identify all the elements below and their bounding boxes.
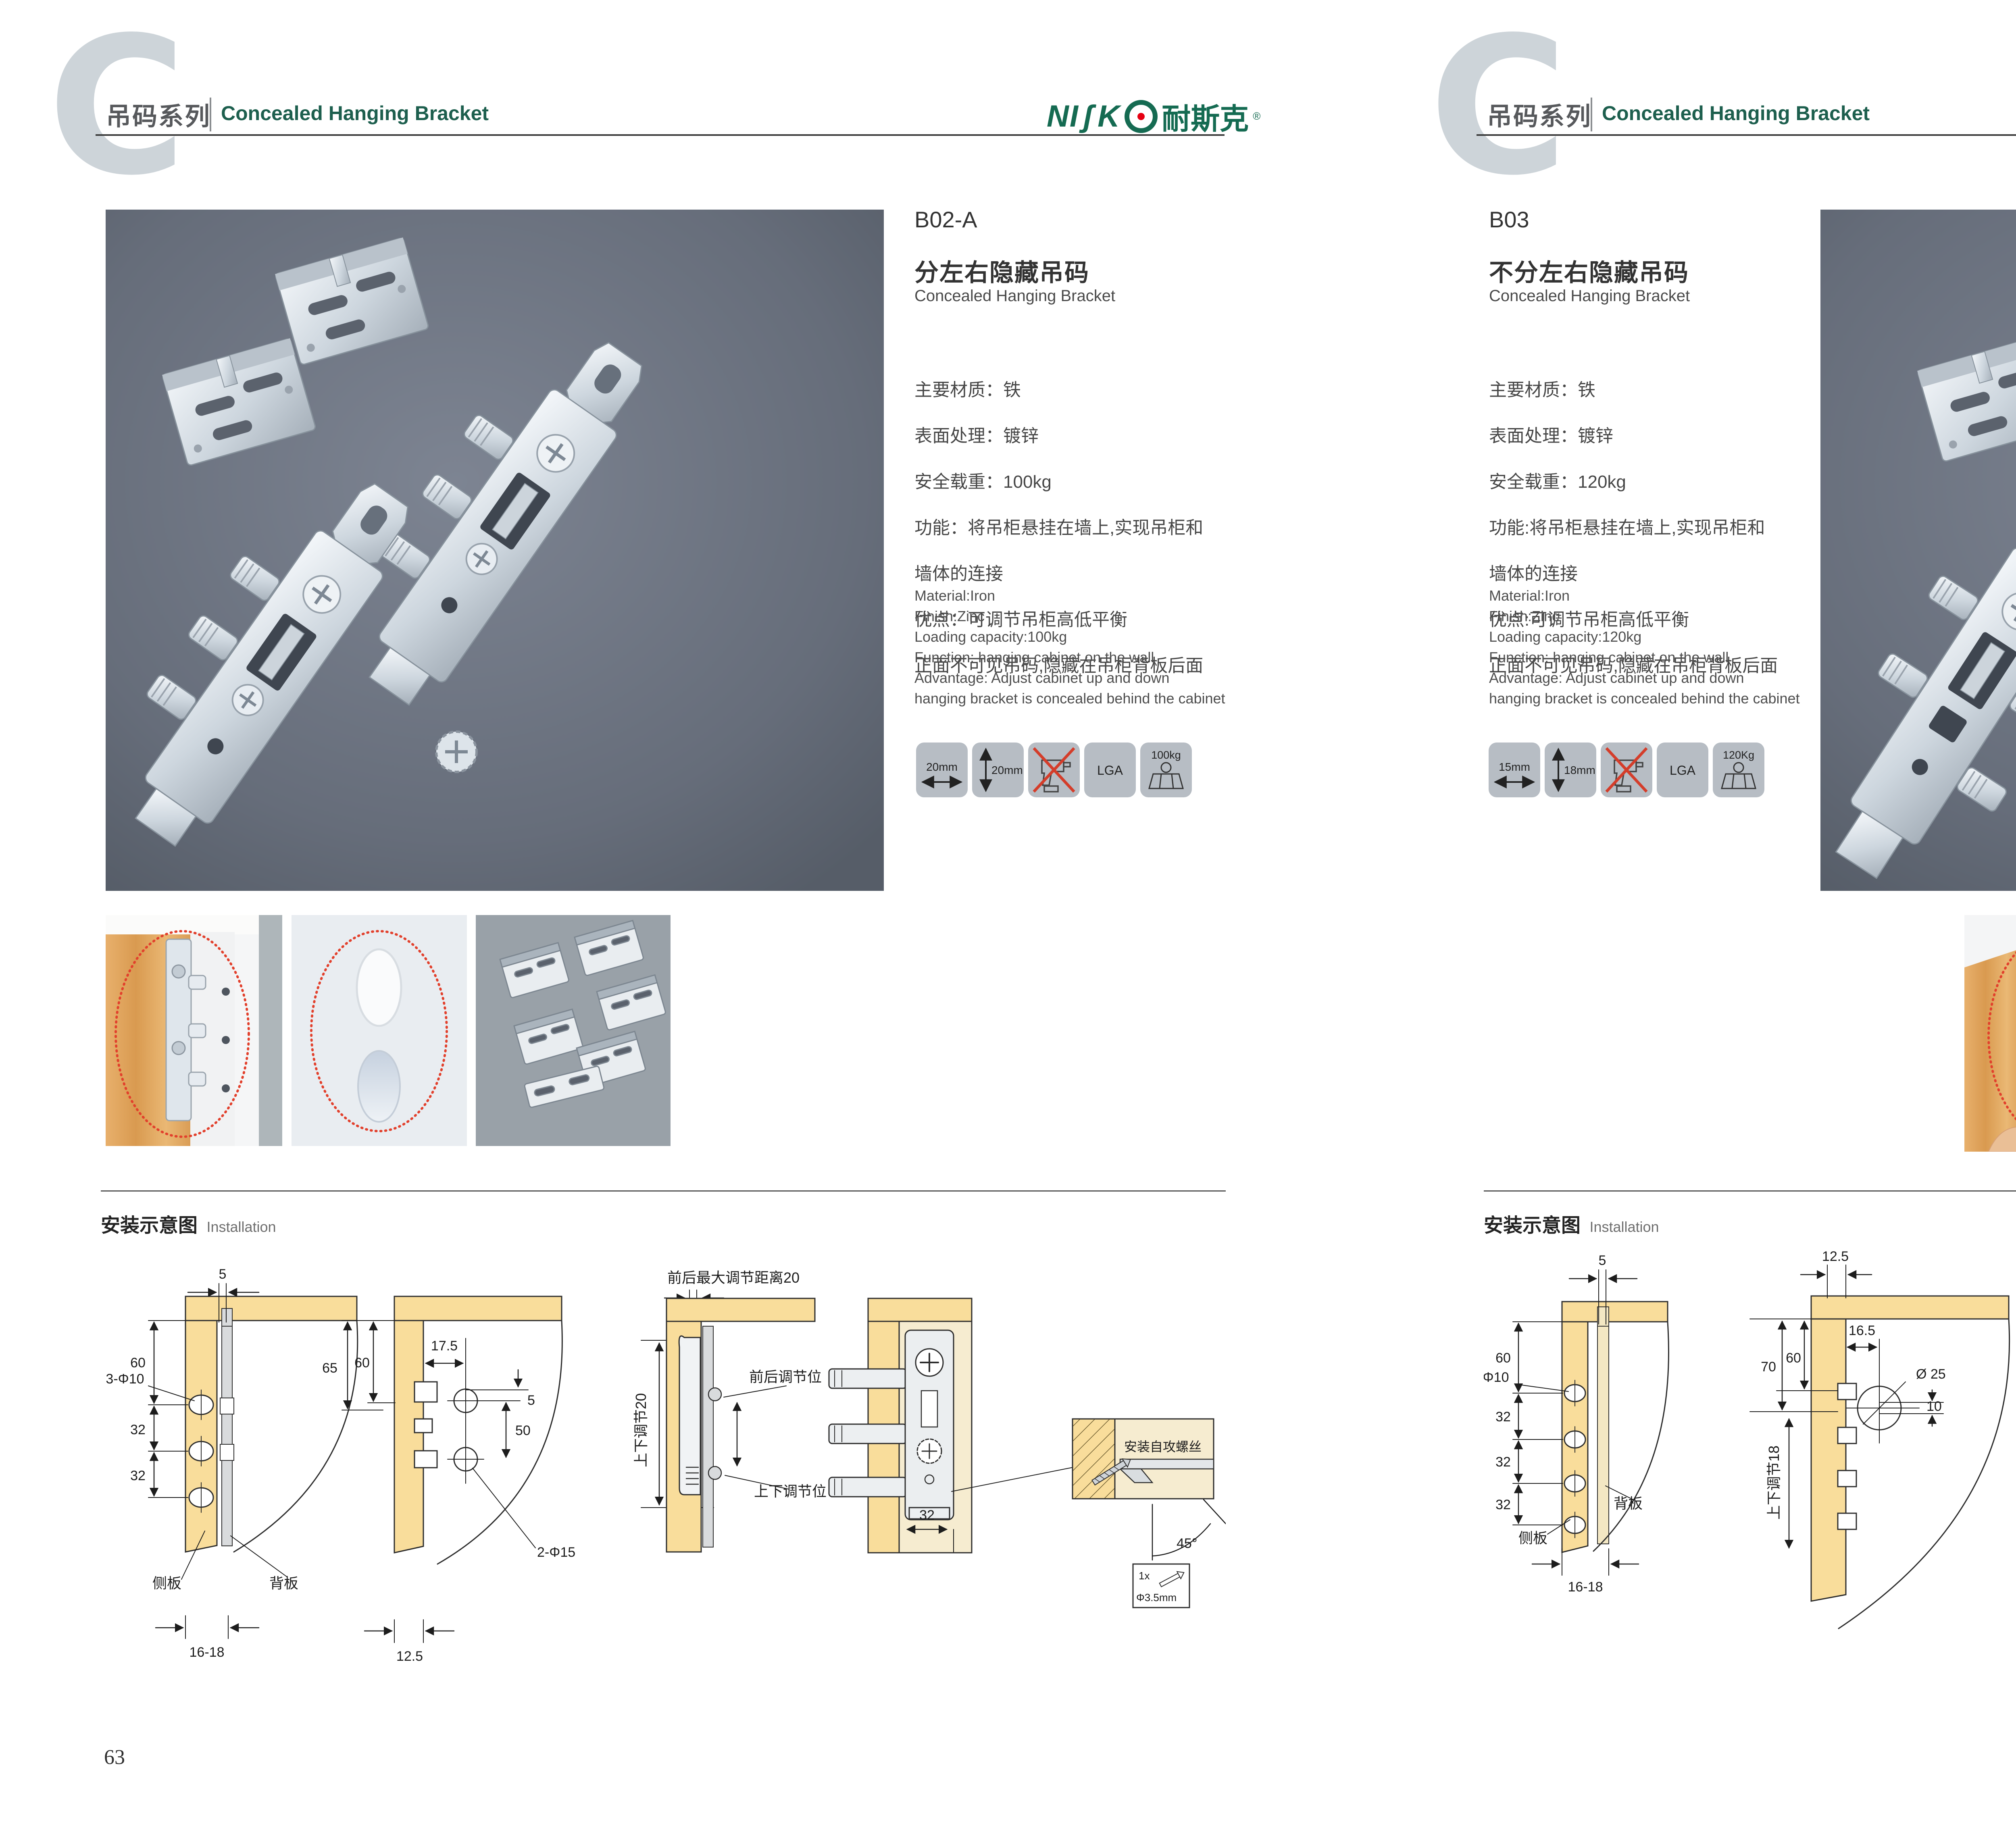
spec-line: 安全载重：120kg [1489, 470, 1844, 493]
svg-text:Φ10: Φ10 [1484, 1370, 1509, 1385]
spec-line: Finish:Zinc [1489, 606, 1852, 626]
svg-text:60: 60 [1786, 1350, 1801, 1366]
svg-text:上下调节位: 上下调节位 [754, 1483, 827, 1500]
icon-no-drill-badge [1601, 743, 1652, 797]
product-name-en: Concealed Hanging Bracket [1489, 287, 1690, 305]
product-code: B03 [1489, 206, 1529, 233]
installation-title-cn: 安装示意图 [1484, 1215, 1581, 1236]
series-title-cn: 吊码系列 [1487, 96, 1592, 132]
icon-cert-badge: LGA [1657, 743, 1708, 797]
svg-text:10: 10 [1926, 1399, 1942, 1414]
installation-header: 安装示意图 Installation [101, 1209, 276, 1238]
feature-icons-row: 15mm 18mm [1489, 743, 1764, 797]
load-press-icon [1722, 774, 1756, 788]
svg-text:65: 65 [322, 1360, 337, 1376]
svg-text:背板: 背板 [269, 1575, 298, 1591]
spec-line: 功能:将吊柜悬挂在墙上,实现吊柜和 [1489, 516, 1844, 539]
spec-line: 安全载重：100kg [914, 470, 1269, 493]
red-x-icon [1034, 748, 1074, 792]
spec-line: hanging bracket is concealed behind the … [914, 688, 1277, 709]
drill-icon [1614, 760, 1643, 792]
brand-logo-cn: 耐斯克 [1162, 95, 1249, 137]
svg-text:70: 70 [1761, 1359, 1776, 1375]
svg-text:32: 32 [1495, 1497, 1511, 1512]
svg-text:12.5: 12.5 [396, 1649, 423, 1664]
spec-line: 墙体的连接 [914, 562, 1269, 585]
spec-line: Advantage: Adjust cabinet up and down [1489, 668, 1852, 688]
installation-diagrams-left: 5 60 3-Φ10 32 32 侧板 背板 [101, 1242, 1226, 1747]
icon-load-badge: 100kg [1140, 743, 1192, 797]
svg-text:侧板: 侧板 [152, 1575, 181, 1591]
spec-line: Material:Iron [1489, 585, 1852, 606]
installation-diagrams-right: 5 60 Φ10 32 32 32 背板 侧板 [1484, 1242, 2016, 1747]
svg-text:侧板: 侧板 [1518, 1530, 1547, 1546]
brand-logo-o-icon [1125, 100, 1158, 133]
icon-height-badge: 20mm [972, 743, 1024, 797]
load-head-icon [1734, 763, 1743, 772]
svg-text:1x: 1x [1139, 1570, 1150, 1582]
load-value: 100kg [1151, 749, 1181, 761]
width-value: 20mm [926, 761, 958, 773]
svg-text:16-18: 16-18 [1568, 1579, 1603, 1595]
svg-text:前后调节位: 前后调节位 [749, 1369, 822, 1385]
svg-text:前后最大调节距离20: 前后最大调节距离20 [667, 1269, 800, 1286]
installation-rule [1484, 1190, 2016, 1192]
svg-text:12.5: 12.5 [1822, 1249, 1849, 1264]
installation-title-en: Installation [206, 1219, 276, 1235]
installation-rule [101, 1190, 1226, 1192]
svg-text:60: 60 [130, 1355, 146, 1371]
svg-text:50: 50 [515, 1423, 531, 1438]
page-left: C 吊码系列 Concealed Hanging Bracket NI ʃ K … [0, 0, 1352, 1847]
product-name-en: Concealed Hanging Bracket [914, 287, 1115, 305]
product-specs-en: Material:Iron Finish:Zinc Loading capaci… [914, 585, 1277, 709]
svg-text:32: 32 [130, 1422, 146, 1437]
icon-width-badge: 15mm [1489, 743, 1540, 797]
spec-line: Advantage: Adjust cabinet up and down [914, 668, 1277, 688]
spec-line: 表面处理：镀锌 [1489, 424, 1844, 447]
svg-text:32: 32 [130, 1468, 146, 1483]
height-value: 20mm [991, 764, 1023, 776]
series-title-en: Concealed Hanging Bracket [1602, 102, 1870, 125]
load-value: 120Kg [1723, 749, 1754, 761]
svg-text:上下调节20: 上下调节20 [633, 1393, 649, 1467]
svg-text:17.5: 17.5 [431, 1338, 458, 1354]
brand-logo-s: ʃ [1083, 99, 1093, 134]
spec-line: Finish:Zinc [914, 606, 1277, 626]
page-number: 63 [104, 1745, 125, 1769]
width-value: 15mm [1499, 761, 1530, 773]
installation-title-en: Installation [1589, 1219, 1659, 1235]
product-code: B02-A [914, 206, 977, 233]
thumbnail-wall-plates [476, 915, 671, 1148]
spec-line: Material:Iron [914, 585, 1277, 606]
icon-cert-badge: LGA [1084, 743, 1136, 797]
svg-text:安装自攻螺丝: 安装自攻螺丝 [1124, 1439, 1202, 1454]
installation-title-cn: 安装示意图 [101, 1215, 198, 1236]
svg-text:上下调节18: 上下调节18 [1766, 1446, 1782, 1520]
svg-text:5: 5 [1599, 1253, 1606, 1268]
svg-text:45°: 45° [1177, 1536, 1197, 1551]
brand-red-dot-icon [1137, 113, 1145, 120]
svg-text:背板: 背板 [1614, 1495, 1643, 1512]
spec-line: hanging bracket is concealed behind the … [1489, 688, 1852, 709]
spec-line: 主要材质：铁 [1489, 379, 1844, 401]
svg-text:32: 32 [1495, 1454, 1511, 1470]
spec-line: 表面处理：镀锌 [914, 424, 1269, 447]
red-x-icon [1606, 748, 1647, 792]
spec-line: 功能：将吊柜悬挂在墙上,实现吊柜和 [914, 516, 1269, 539]
installation-header: 安装示意图 Installation [1484, 1209, 1659, 1238]
header-rule [1477, 134, 2016, 136]
svg-text:16-18: 16-18 [190, 1645, 225, 1660]
svg-text:3-Φ10: 3-Φ10 [106, 1371, 144, 1387]
spec-line: 主要材质：铁 [914, 379, 1269, 401]
load-press-icon [1149, 774, 1183, 788]
svg-text:5: 5 [527, 1393, 535, 1408]
spec-line: 墙体的连接 [1489, 562, 1844, 585]
thumbnail-concealed-holes [292, 915, 467, 1148]
brand-logo-k: K [1098, 99, 1120, 134]
product-name-cn: 不分左右隐藏吊码 [1489, 253, 1689, 288]
icon-load-badge: 120Kg [1713, 743, 1764, 797]
svg-text:5: 5 [219, 1267, 227, 1282]
svg-text:60: 60 [1495, 1350, 1511, 1366]
thumbnail-installed [106, 915, 282, 1148]
svg-text:32: 32 [919, 1508, 935, 1523]
icon-no-drill-badge [1028, 743, 1080, 797]
cert-label: LGA [1097, 763, 1123, 778]
series-title-en: Concealed Hanging Bracket [221, 102, 489, 125]
catalog-spread: C 吊码系列 Concealed Hanging Bracket NI ʃ K … [0, 0, 2016, 1847]
header-divider-bar [210, 98, 211, 131]
brand-logo: NI ʃ K 耐斯克 ® [1047, 95, 1260, 137]
height-value: 18mm [1564, 764, 1595, 776]
header-rule [96, 134, 1225, 136]
cert-label: LGA [1670, 763, 1696, 778]
feature-icons-row: 20mm 20mm [916, 743, 1192, 797]
series-title-cn: 吊码系列 [106, 96, 211, 132]
product-specs-en: Material:Iron Finish:Zinc Loading capaci… [1489, 585, 1852, 709]
header-divider-bar [1591, 98, 1592, 131]
product-photo-b02a [106, 210, 884, 893]
page-right: C 吊码系列 Concealed Hanging Bracket NI ʃ K … [1352, 0, 2016, 1847]
svg-text:Ø 25: Ø 25 [1916, 1367, 1946, 1382]
load-head-icon [1161, 763, 1171, 772]
svg-text:16.5: 16.5 [1849, 1323, 1875, 1338]
spec-line: Function: hanging cabinet on the wall [914, 647, 1277, 668]
spec-line: Loading capacity:120kg [1489, 626, 1852, 647]
svg-text:60: 60 [354, 1355, 370, 1371]
svg-text:Φ3.5mm: Φ3.5mm [1136, 1591, 1177, 1604]
product-photo-b03 [1820, 210, 2016, 893]
drill-icon [1042, 760, 1070, 792]
icon-height-badge: 18mm [1545, 743, 1596, 797]
spec-line: Loading capacity:100kg [914, 626, 1277, 647]
brand-registered-mark: ® [1253, 110, 1260, 123]
thumbnail-installed [1964, 915, 2016, 1154]
product-name-cn: 分左右隐藏吊码 [914, 253, 1089, 288]
svg-text:2-Φ15: 2-Φ15 [537, 1545, 575, 1560]
svg-text:32: 32 [1495, 1409, 1511, 1425]
spec-line: Function: hanging cabinet on the wall [1489, 647, 1852, 668]
icon-width-badge: 20mm [916, 743, 968, 797]
brand-logo-ni: NI [1047, 99, 1079, 134]
